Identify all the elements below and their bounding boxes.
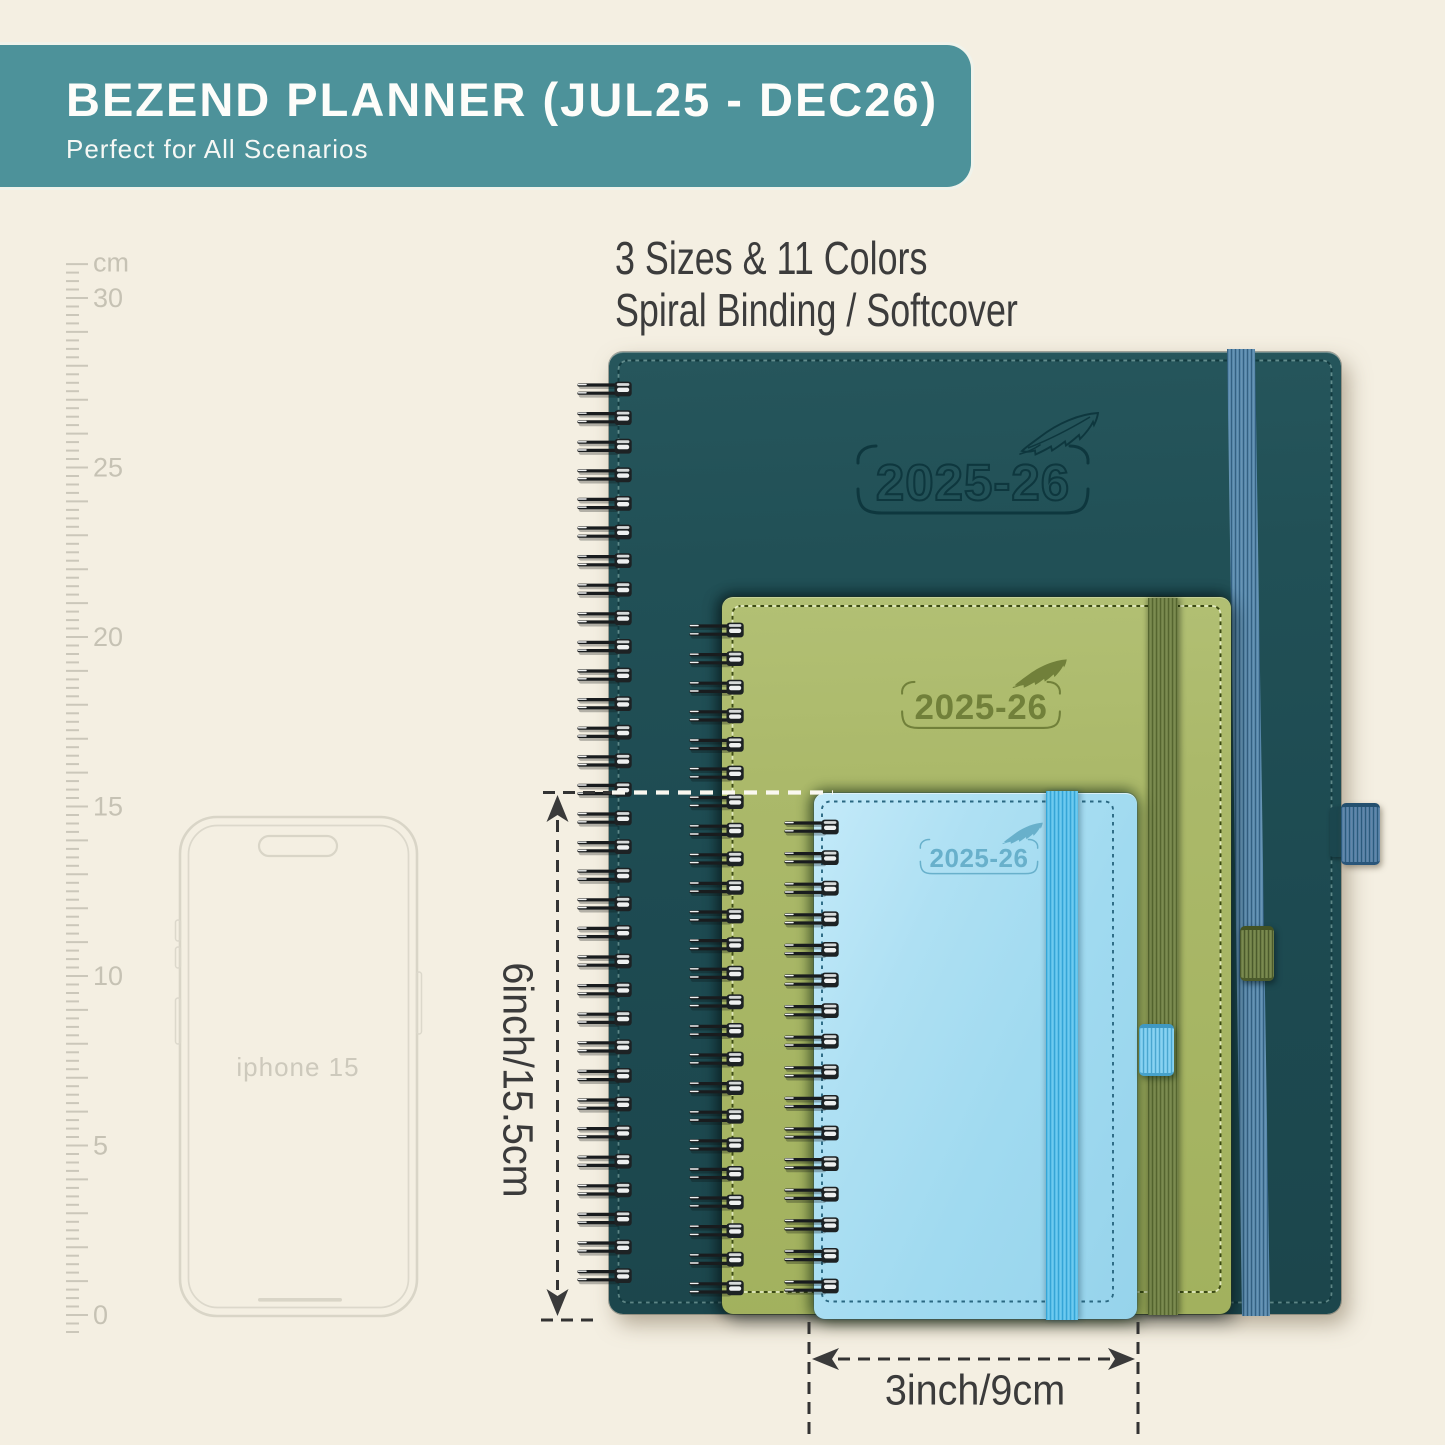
svg-text:iphone 15: iphone 15 (236, 1052, 359, 1082)
svg-text:5: 5 (93, 1131, 108, 1161)
svg-text:15: 15 (93, 792, 123, 822)
svg-text:cm: cm (93, 247, 129, 277)
svg-text:30: 30 (93, 283, 123, 313)
svg-text:10: 10 (93, 961, 123, 991)
svg-text:2025-26: 2025-26 (876, 454, 1070, 511)
svg-text:2025-26: 2025-26 (930, 843, 1029, 873)
svg-text:20: 20 (93, 622, 123, 652)
svg-text:0: 0 (93, 1300, 108, 1330)
svg-text:25: 25 (93, 453, 123, 483)
svg-text:2025-26: 2025-26 (914, 688, 1047, 727)
